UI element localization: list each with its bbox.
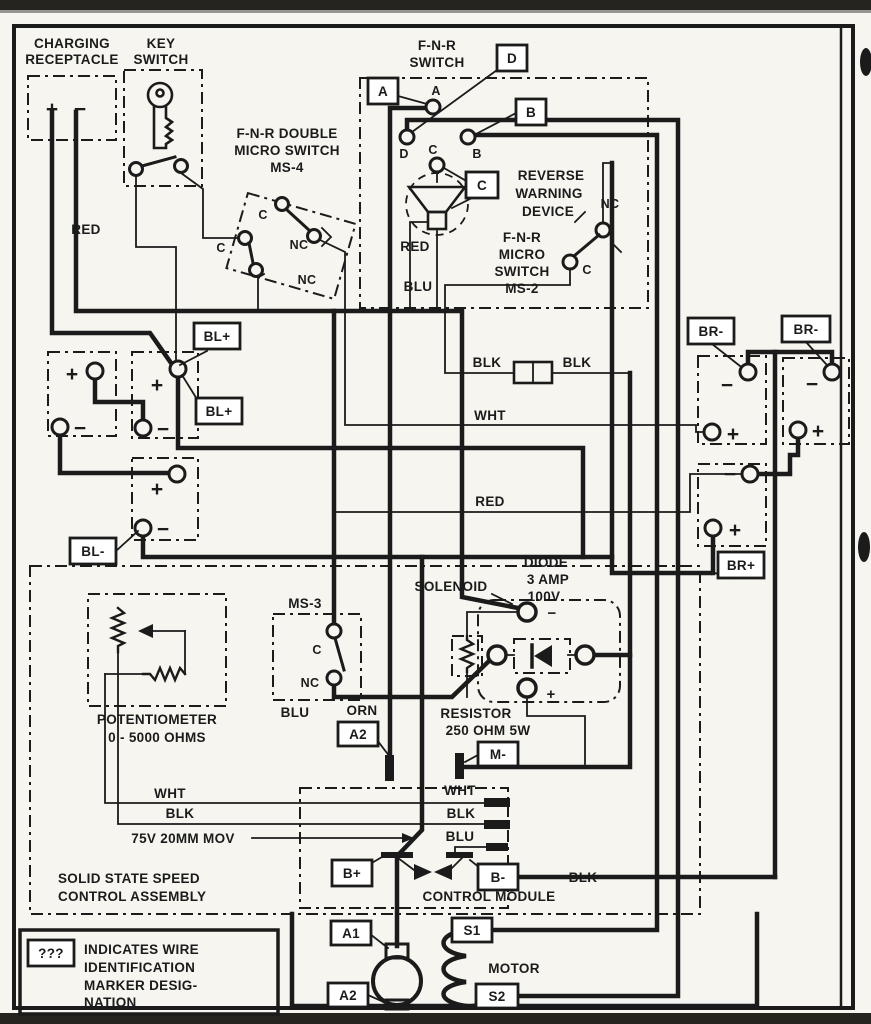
marker-blminus: BL- (81, 544, 104, 559)
receptacle-minus-sign: − (74, 98, 86, 121)
ms2-label-4: MS-2 (505, 281, 538, 296)
fnr-switch-label-1: F-N-R (418, 38, 456, 53)
ms3-c-label: C (312, 643, 321, 657)
solenoid-resistor-icon (461, 636, 473, 672)
binder-blob-top (860, 48, 871, 76)
terminal-letter-b: B (472, 147, 481, 161)
solenoid-terminal-left (488, 646, 506, 664)
charging-receptacle-label-2: RECEPTACLE (25, 52, 119, 67)
key-contact-left (130, 163, 143, 176)
terminal-letter-a: A (431, 84, 440, 98)
legend-line-3: MARKER DESIG- (84, 978, 197, 993)
torn-top-edge (0, 0, 871, 10)
marker-bplus: B+ (343, 866, 361, 881)
marker-c: C (477, 178, 487, 193)
key-icon-shaft (154, 106, 172, 148)
mminus-terminal-bar (455, 753, 464, 779)
ms4-nc-label-1: NC (290, 238, 309, 252)
wire-receptacle-plus (52, 112, 171, 363)
key-switch-blade (142, 157, 175, 166)
wire-label-blu-speaker: BLU (404, 279, 433, 294)
transistor-bar-right (446, 852, 473, 858)
fnr-switch-label-2: SWITCH (409, 55, 464, 70)
mov-label: 75V 20MM MOV (131, 831, 234, 846)
wire-label-blk-module: BLK (447, 806, 476, 821)
pot-wiper-arrowhead (138, 624, 153, 638)
terminal-letter-d: D (399, 147, 408, 161)
wire-label-red-left: RED (71, 222, 100, 237)
wire-blminus-run (143, 536, 612, 557)
ms3-label: MS-3 (288, 596, 322, 611)
solenoid-terminal-bottom (518, 679, 536, 697)
ms4-nc-label-2: NC (298, 273, 317, 287)
ms4-c-label-2: C (216, 241, 225, 255)
charging-receptacle-box (28, 76, 116, 140)
blk-connector (484, 820, 510, 829)
bat-l1-minus-terminal (52, 419, 68, 435)
ms4-label-3: MS-4 (270, 160, 304, 175)
fnr-terminal-a (426, 100, 440, 114)
wire-label-blk-left: BLK (166, 806, 195, 821)
legend-qqq: ??? (38, 946, 64, 961)
ms3-blade (335, 638, 344, 670)
wire-label-blk-fuse-right: BLK (563, 355, 592, 370)
wire-speaker-red (410, 222, 427, 311)
reverse-warning-label-1: REVERSE (518, 168, 585, 183)
ms2-blade (574, 235, 599, 256)
potentiometer-box (88, 594, 226, 706)
wire-label-orn: ORN (347, 703, 378, 718)
marker-mminus: M- (490, 747, 506, 762)
bat-l1-plus: + (66, 363, 78, 386)
wire-solenoid-res-top (467, 612, 518, 640)
a2-terminal-bar (385, 755, 394, 781)
solenoid-terminal-top (518, 603, 536, 621)
bat-l3-minus: − (157, 518, 169, 541)
bat-l2-plus: + (151, 374, 163, 397)
speaker-cone-icon (409, 187, 465, 212)
ms4-c-label-1: C (258, 208, 267, 222)
bat-r2-plus-terminal (790, 422, 806, 438)
pot-series-resistor-icon (143, 668, 185, 680)
bat-l2-minus-terminal (135, 420, 151, 436)
torn-top-edge-fade (0, 10, 871, 13)
diode-label-2: 3 AMP (527, 572, 569, 587)
wire-label-blk-fuse-left: BLK (473, 355, 502, 370)
solenoid-terminal-right (576, 646, 594, 664)
wire-label-blk-bminus: BLK (569, 870, 598, 885)
bat-r3-plus: + (729, 519, 741, 542)
bat-r1-minus-terminal (740, 364, 756, 380)
wire-label-wht-left: WHT (154, 786, 186, 801)
motor-label: MOTOR (488, 961, 540, 976)
wire-controller-feed (400, 557, 422, 853)
bat-l3-minus-terminal (135, 520, 151, 536)
ms2-label-1: F-N-R (503, 230, 541, 245)
marker-brminus-2: BR- (794, 322, 819, 337)
wiring-diagram-svg: + − + − + − + − − + − + − (0, 0, 871, 1024)
legend-line-1: INDICATES WIRE (84, 942, 199, 957)
wire-label-blu-module: BLU (446, 829, 475, 844)
diode-label-3: 100V (528, 589, 561, 604)
wire-red-run (335, 450, 742, 512)
wiring-diagram-page: + − + − + − + − − + − + − (0, 0, 871, 1024)
diode-triangle-icon (534, 645, 552, 667)
bat-r1-minus: − (721, 374, 733, 397)
transistor-leads (398, 858, 462, 870)
wht-connector (484, 798, 510, 807)
charging-receptacle-label-1: CHARGING (34, 36, 110, 51)
fnr-terminal-b (461, 130, 475, 144)
assembly-label-1: SOLID STATE SPEED (58, 871, 200, 886)
ms3-contact-nc (327, 671, 341, 685)
wire-bat1p-bat2m (95, 379, 143, 420)
ms3-contact-c (327, 624, 341, 638)
resistor-label-2: 250 OHM 5W (446, 723, 531, 738)
wire-label-blu-ms3: BLU (281, 705, 310, 720)
ms4-label-2: MICRO SWITCH (234, 143, 340, 158)
control-module-label: CONTROL MODULE (423, 889, 556, 904)
receptacle-plus-sign: + (46, 98, 58, 121)
assembly-label-2: CONTROL ASSEMBLY (58, 889, 206, 904)
solenoid-minus-sign: − (547, 605, 556, 622)
transistor-arrow-right-icon (414, 864, 432, 880)
marker-d: D (507, 51, 517, 66)
key-icon-hole (157, 90, 164, 97)
reverse-warning-label-3: DEVICE (522, 204, 574, 219)
marker-a: A (378, 84, 388, 99)
potentiometer-label-2: 0 - 5000 OHMS (108, 730, 206, 745)
motor-armature-icon (373, 957, 421, 1005)
marker-s2: S2 (488, 989, 505, 1004)
bat-l1-minus: − (74, 417, 86, 440)
ms2-label-2: MICRO (499, 247, 546, 262)
bat-r2-minus: − (806, 373, 818, 396)
ms4-blade-2 (249, 243, 253, 263)
marker-brplus: BR+ (727, 558, 755, 573)
resistor-label-1: RESISTOR (440, 706, 511, 721)
bat-r3-minus: − (724, 463, 736, 486)
bat-r3-plus-terminal (705, 520, 721, 536)
marker-b: B (526, 105, 536, 120)
transistor-arrow-left-icon (434, 864, 452, 880)
marker-s1: S1 (463, 923, 480, 938)
wire-label-wht-module: WHT (444, 783, 476, 798)
wire-blu-stub (455, 847, 486, 852)
ms3-nc-label: NC (301, 676, 320, 690)
marker-a1: A1 (342, 926, 360, 941)
speaker-body-icon (428, 212, 446, 229)
bat-l2-minus: − (157, 418, 169, 441)
wire-key-to-ms4 (181, 173, 238, 238)
wire-solenoid-plus (527, 698, 585, 764)
bat-r1-plus: + (727, 423, 739, 446)
ms2-nc-label: NC (601, 197, 620, 211)
ms2-label-3: SWITCH (494, 264, 549, 279)
pot-resistor-icon (112, 608, 124, 652)
legend-line-2: IDENTIFICATION (84, 960, 195, 975)
bplus-bminus-leads (370, 857, 480, 868)
marker-a2: A2 (349, 727, 367, 742)
solenoid-label: SOLENOID (415, 579, 488, 594)
fnr-terminal-c (430, 158, 444, 172)
bat-r2-minus-terminal (824, 364, 840, 380)
ms2-c-label: C (582, 263, 591, 277)
solenoid-plus-sign: + (546, 686, 555, 703)
bat-r3-minus-terminal (742, 466, 758, 482)
ms4-blade-1 (286, 209, 310, 231)
diode-label-1: DIODE (524, 555, 568, 570)
key-switch-label-1: KEY (147, 36, 176, 51)
wire-label-wht-mid: WHT (474, 408, 506, 423)
blu-connector (486, 843, 508, 851)
marker-brminus-1: BR- (699, 324, 724, 339)
terminal-letter-c: C (428, 143, 437, 157)
potentiometer-label-1: POTENTIOMETER (97, 712, 217, 727)
bat-l3-plus: + (151, 478, 163, 501)
bat-r1-plus-terminal (704, 424, 720, 440)
marker-a2-motor: A2 (339, 988, 357, 1003)
wire-label-red-mid: RED (475, 494, 504, 509)
marker-bminus: B- (491, 870, 506, 885)
key-switch-label-2: SWITCH (133, 52, 188, 67)
transistor-bar-left (381, 852, 413, 858)
marker-blplus-1: BL+ (204, 329, 231, 344)
wire-label-red-speaker: RED (400, 239, 429, 254)
bat-l1-plus-terminal (87, 363, 103, 379)
key-contact-right (175, 160, 188, 173)
ms4-label-1: F-N-R DOUBLE (236, 126, 337, 141)
reverse-warning-label-2: WARNING (515, 186, 582, 201)
bat-r2-plus: + (812, 420, 824, 443)
bat-l3-plus-terminal (169, 466, 185, 482)
marker-blplus-2: BL+ (206, 404, 233, 419)
binder-blob-mid (858, 532, 870, 562)
key-icon (148, 83, 172, 107)
wire-bat1m-bat3p (60, 435, 169, 473)
legend-line-4: NATION (84, 995, 137, 1010)
